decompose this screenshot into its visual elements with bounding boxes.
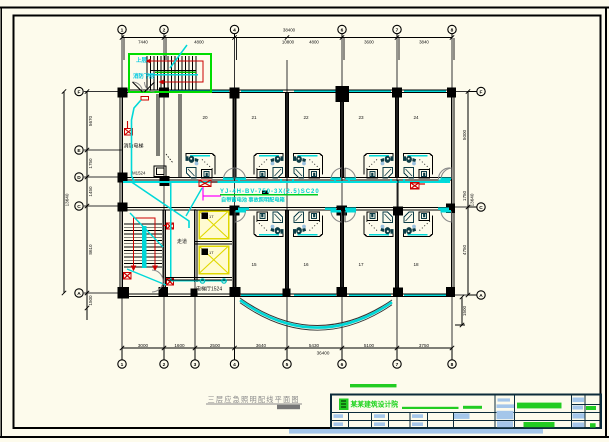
svg-text:13640: 13640 <box>65 193 70 206</box>
svg-text:C: C <box>77 204 81 210</box>
svg-text:C: C <box>479 205 483 211</box>
svg-text:7: 7 <box>396 28 399 34</box>
svg-text:8: 8 <box>451 362 454 368</box>
svg-text:2: 2 <box>163 28 166 34</box>
svg-text:38400: 38400 <box>283 27 296 32</box>
svg-text:2500: 2500 <box>210 343 221 348</box>
svg-text:3: 3 <box>194 362 197 368</box>
svg-text:1600: 1600 <box>174 343 185 348</box>
svg-text:8: 8 <box>451 28 454 34</box>
svg-text:6: 6 <box>341 362 344 368</box>
svg-text:6: 6 <box>341 28 344 34</box>
svg-text:1750: 1750 <box>88 158 93 169</box>
svg-text:电梯厅1524: 电梯厅1524 <box>196 286 222 293</box>
svg-text:上层: 上层 <box>136 56 147 64</box>
svg-text:10800: 10800 <box>282 40 295 45</box>
svg-text:36400: 36400 <box>317 351 330 356</box>
svg-text:F: F <box>480 90 483 96</box>
svg-text:三层应急照明配线平面图: 三层应急照明配线平面图 <box>208 395 300 404</box>
svg-text:17: 17 <box>358 262 364 267</box>
svg-text:21: 21 <box>251 115 257 120</box>
svg-text:22: 22 <box>303 115 309 120</box>
svg-text:3000: 3000 <box>138 343 149 348</box>
svg-text:D: D <box>77 175 81 181</box>
svg-text:7: 7 <box>396 362 399 368</box>
svg-text:18: 18 <box>413 262 419 267</box>
svg-text:3640: 3640 <box>256 343 267 348</box>
svg-text:F: F <box>78 90 81 96</box>
svg-text:1500: 1500 <box>88 295 93 306</box>
svg-text:消防电梯: 消防电梯 <box>124 143 144 150</box>
svg-text:1: 1 <box>121 28 124 34</box>
svg-text:4: 4 <box>233 28 236 34</box>
svg-text:4800: 4800 <box>194 40 204 45</box>
svg-text:YJ-4H-BV-750-3X(2.5)SC20: YJ-4H-BV-750-3X(2.5)SC20 <box>220 189 320 195</box>
svg-text:5000: 5000 <box>462 129 467 140</box>
svg-text:某某建筑设计院: 某某建筑设计院 <box>351 400 399 409</box>
svg-text:3840: 3840 <box>419 40 429 45</box>
svg-text:1T: 1T <box>209 250 214 255</box>
svg-text:16: 16 <box>303 262 309 267</box>
svg-text:5430: 5430 <box>309 343 320 348</box>
svg-text:8610: 8610 <box>88 244 93 255</box>
svg-text:2: 2 <box>163 362 166 368</box>
svg-text:4: 4 <box>233 362 236 368</box>
svg-text:1T: 1T <box>209 214 214 219</box>
svg-text:15: 15 <box>251 262 257 267</box>
svg-text:24: 24 <box>413 115 419 120</box>
svg-text:A: A <box>479 293 483 299</box>
svg-text:1450: 1450 <box>88 186 93 197</box>
svg-text:3600: 3600 <box>364 40 374 45</box>
svg-text:1500: 1500 <box>462 305 467 316</box>
svg-text:A: A <box>77 291 81 297</box>
svg-text:1750: 1750 <box>462 190 467 201</box>
svg-text:5: 5 <box>286 362 289 368</box>
svg-text:M1524: M1524 <box>132 171 146 176</box>
svg-text:3750: 3750 <box>419 343 430 348</box>
svg-text:4750: 4750 <box>462 244 467 255</box>
svg-text:4800: 4800 <box>309 40 319 45</box>
svg-text:1: 1 <box>121 362 124 368</box>
svg-text:23: 23 <box>358 115 364 120</box>
svg-text:7440: 7440 <box>138 40 148 45</box>
svg-text:走道: 走道 <box>177 238 187 245</box>
svg-text:20: 20 <box>202 115 208 120</box>
svg-text:自带蓄电池 事故照明配电箱: 自带蓄电池 事故照明配电箱 <box>221 196 286 204</box>
svg-text:5100: 5100 <box>364 343 375 348</box>
svg-text:13640: 13640 <box>470 193 475 206</box>
svg-text:5670: 5670 <box>88 115 93 126</box>
svg-text:消防下层: 消防下层 <box>133 72 155 80</box>
